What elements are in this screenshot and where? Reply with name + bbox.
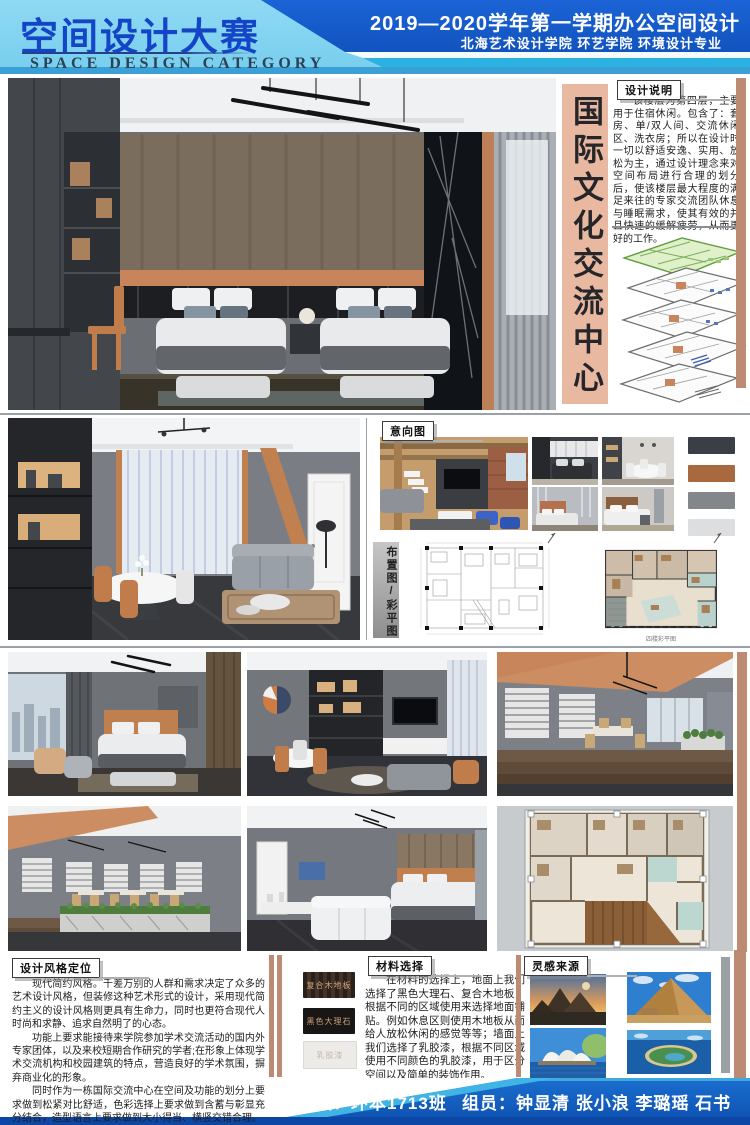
header-school-text: 北海艺术设计学院 环艺学院 环境设计专业 [340,33,722,52]
materials-paragraph: 在材料的选择上，地面上我们选择了黑色大理石、复合木地板，根据不同的区域使用来选择… [365,974,525,1082]
grid-render-tv-lounge [247,652,487,796]
materials-body: 在材料的选择上，地面上我们选择了黑色大理石、复合木地板，根据不同的区域使用来选择… [365,974,525,1082]
palette-swatch-3 [688,492,735,509]
living-room-render [8,418,360,640]
style-paragraph-3: 同时作为一栋国际交流中心在空间及功能的划分上要求做到松紧对比舒适，色彩选择上要求… [12,1085,265,1125]
grid-render-stepped-hall [497,652,733,796]
palette-swatch-1 [688,437,735,454]
poster: 空间设计大赛 SPACE DESIGN CATEGORY 2019—2020学年… [0,0,750,1125]
inspiration-label: 灵感来源 [524,956,588,976]
footer-band-highlight [520,1078,750,1081]
inspiration-photo-opera-house [530,1028,606,1078]
header-session-text: 2019—2020学年第一学期办公空间设计 [340,7,740,36]
inspiration-photo-pyramids-sunset [530,974,606,1025]
mood-photo-loft [380,437,528,530]
divider-bar [269,955,274,1077]
material-swatch-latex-paint: 乳胶漆 [303,1041,357,1069]
mood-photo-warm-bedroom [602,487,674,531]
materials-label: 材料选择 [368,956,432,976]
style-positioning-label: 设计风格定位 [12,958,100,978]
style-paragraph-1: 现代简约风格。千差万别的人群和需求决定了众多的艺术设计风格，但装修这种艺术形式的… [12,978,265,1032]
middle-vertical-divider [366,418,367,640]
moodboard-label: 意向图 [382,421,434,441]
mood-photo-dark-bedroom [532,437,598,485]
grid-render-bedroom [8,652,241,796]
right-accent-bar-grid [737,652,747,952]
north-arrow-icon [712,531,724,545]
color-floor-plan [600,545,722,633]
right-gray-bar [721,957,730,1073]
poster-subtitle: SPACE DESIGN CATEGORY [30,55,325,73]
north-arrow-icon [546,531,558,545]
center-vertical-title: 国际文化交流中心 [562,84,608,404]
inspiration-photo-great-pyramid [627,972,711,1023]
grid-render-suite [247,806,487,951]
exploded-floorplan-diagram [606,232,748,408]
right-accent-bar-top [736,78,746,388]
divider-bar [277,955,282,1077]
section-divider-2 [0,646,750,648]
design-notes-body: 该楼层为第四层，主要用于住宿休闲。包含了：套房、单/双人间、交流休闲区、洗衣房；… [613,96,740,246]
hero-bedroom-render [8,78,556,410]
plans-label: 布置图/彩平图 [373,542,399,638]
style-positioning-body: 现代简约风格。千差万别的人群和需求决定了众多的艺术设计风格，但装修这种艺术形式的… [12,978,265,1125]
grid-render-dining-steps [8,806,241,951]
notes-divider-line [612,226,745,228]
divider-bar [516,955,521,1077]
color-plan-caption: 四楼彩平图 [600,634,722,643]
title-underline [22,52,254,54]
footer-class-info: 班级：环本1713班 [297,1089,447,1114]
mood-photo-dining [602,437,674,485]
design-notes-label: 设计说明 [617,80,681,100]
mood-photo-orange-bedroom [532,487,598,531]
material-swatch-wood-floor: 复合木地板 [303,972,355,998]
grid-3d-plan-top-view [497,806,733,951]
inspiration-photo-atoll [627,1030,711,1074]
line-floor-plan [415,540,555,640]
style-paragraph-2: 功能上要求能接待来学院参加学术交流活动的国内外专家团体，以及来校短期合作研究的学… [12,1032,265,1086]
palette-swatch-2 [688,465,735,482]
right-accent-bar-bottom [734,950,746,1078]
material-swatch-black-marble: 黑色大理石 [303,1008,355,1034]
footer-members: 组员：钟显清 张小浪 李璐瑶 石书 [462,1089,731,1114]
section-divider-1 [0,413,750,415]
